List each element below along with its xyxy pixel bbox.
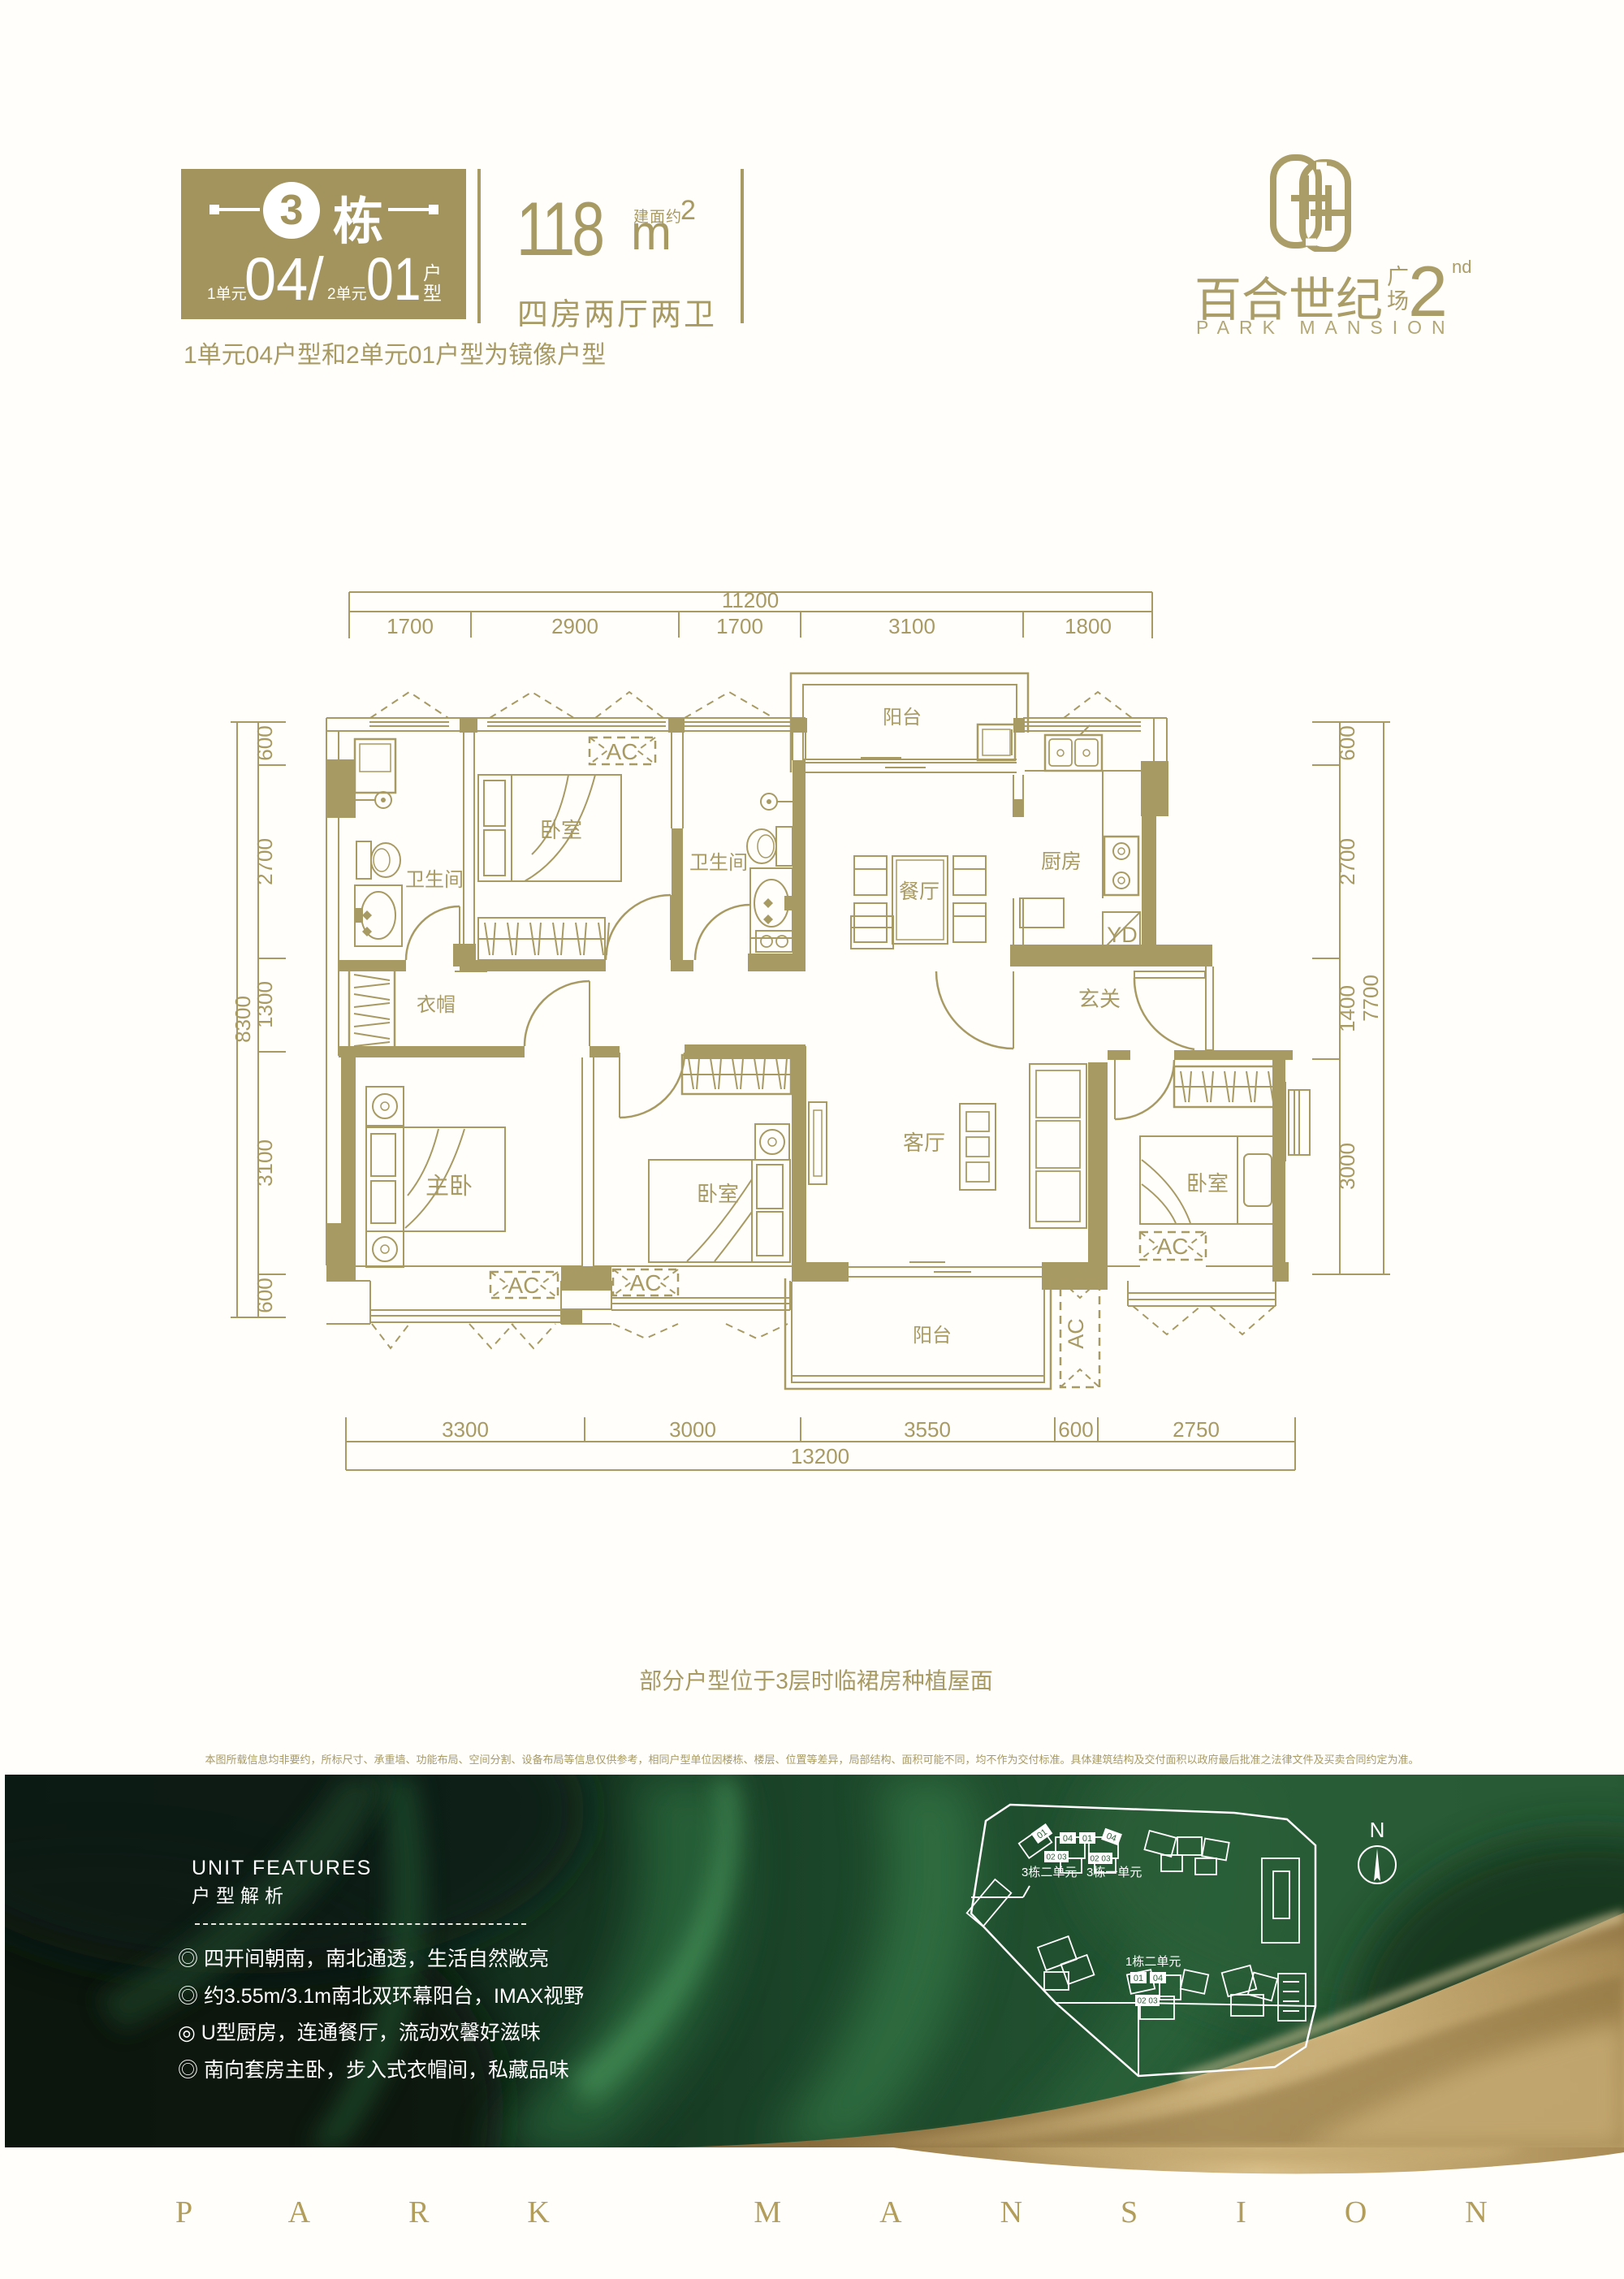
svg-text:04: 04 (1153, 1974, 1163, 1983)
svg-text:01: 01 (1134, 1974, 1143, 1983)
svg-text:02 03: 02 03 (1046, 1853, 1066, 1862)
svg-text:N: N (1370, 1818, 1385, 1842)
svg-text:02 03: 02 03 (1137, 1997, 1157, 2006)
svg-text:01: 01 (1082, 1834, 1092, 1844)
svg-text:1栋二单元: 1栋二单元 (1125, 1954, 1181, 1969)
svg-text:3栋一单元: 3栋一单元 (1086, 1865, 1142, 1879)
svg-text:02 03: 02 03 (1090, 1855, 1110, 1864)
svg-text:3栋二单元: 3栋二单元 (1021, 1865, 1077, 1879)
svg-text:04: 04 (1063, 1834, 1073, 1844)
